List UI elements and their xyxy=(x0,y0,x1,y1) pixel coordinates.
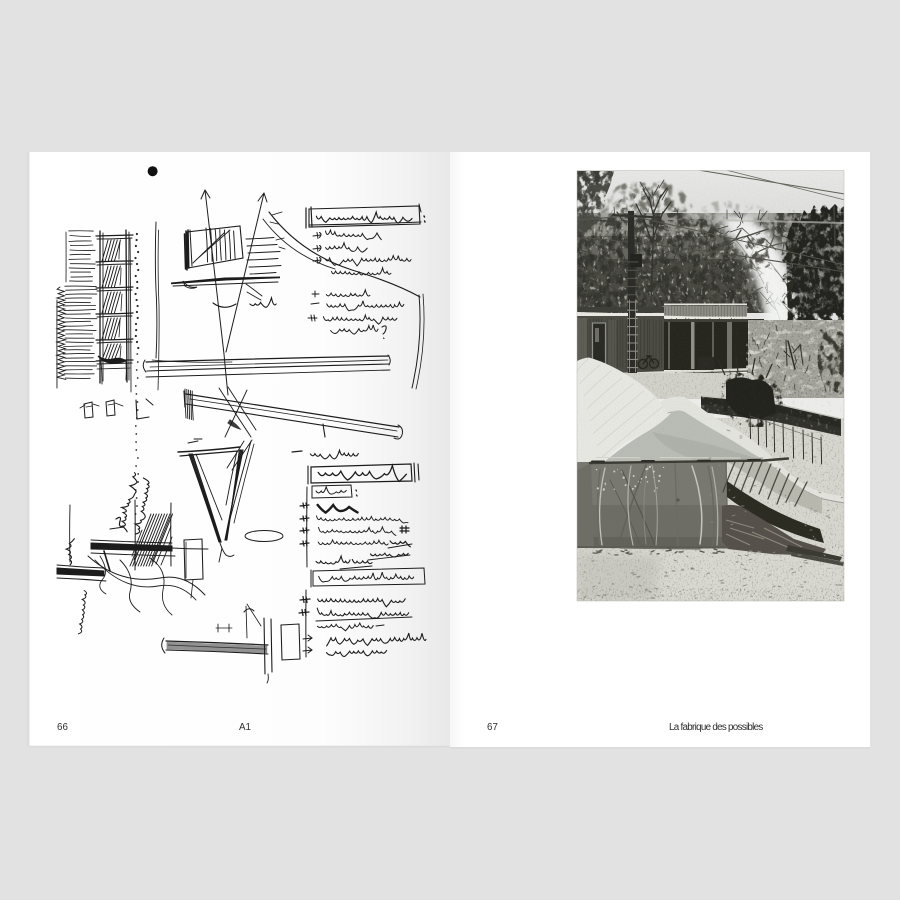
svg-text:A1: A1 xyxy=(239,722,251,733)
svg-text:67: 67 xyxy=(487,722,498,733)
svg-text:La fabrique des possibles: La fabrique des possibles xyxy=(669,722,763,733)
svg-text:66: 66 xyxy=(57,722,68,733)
